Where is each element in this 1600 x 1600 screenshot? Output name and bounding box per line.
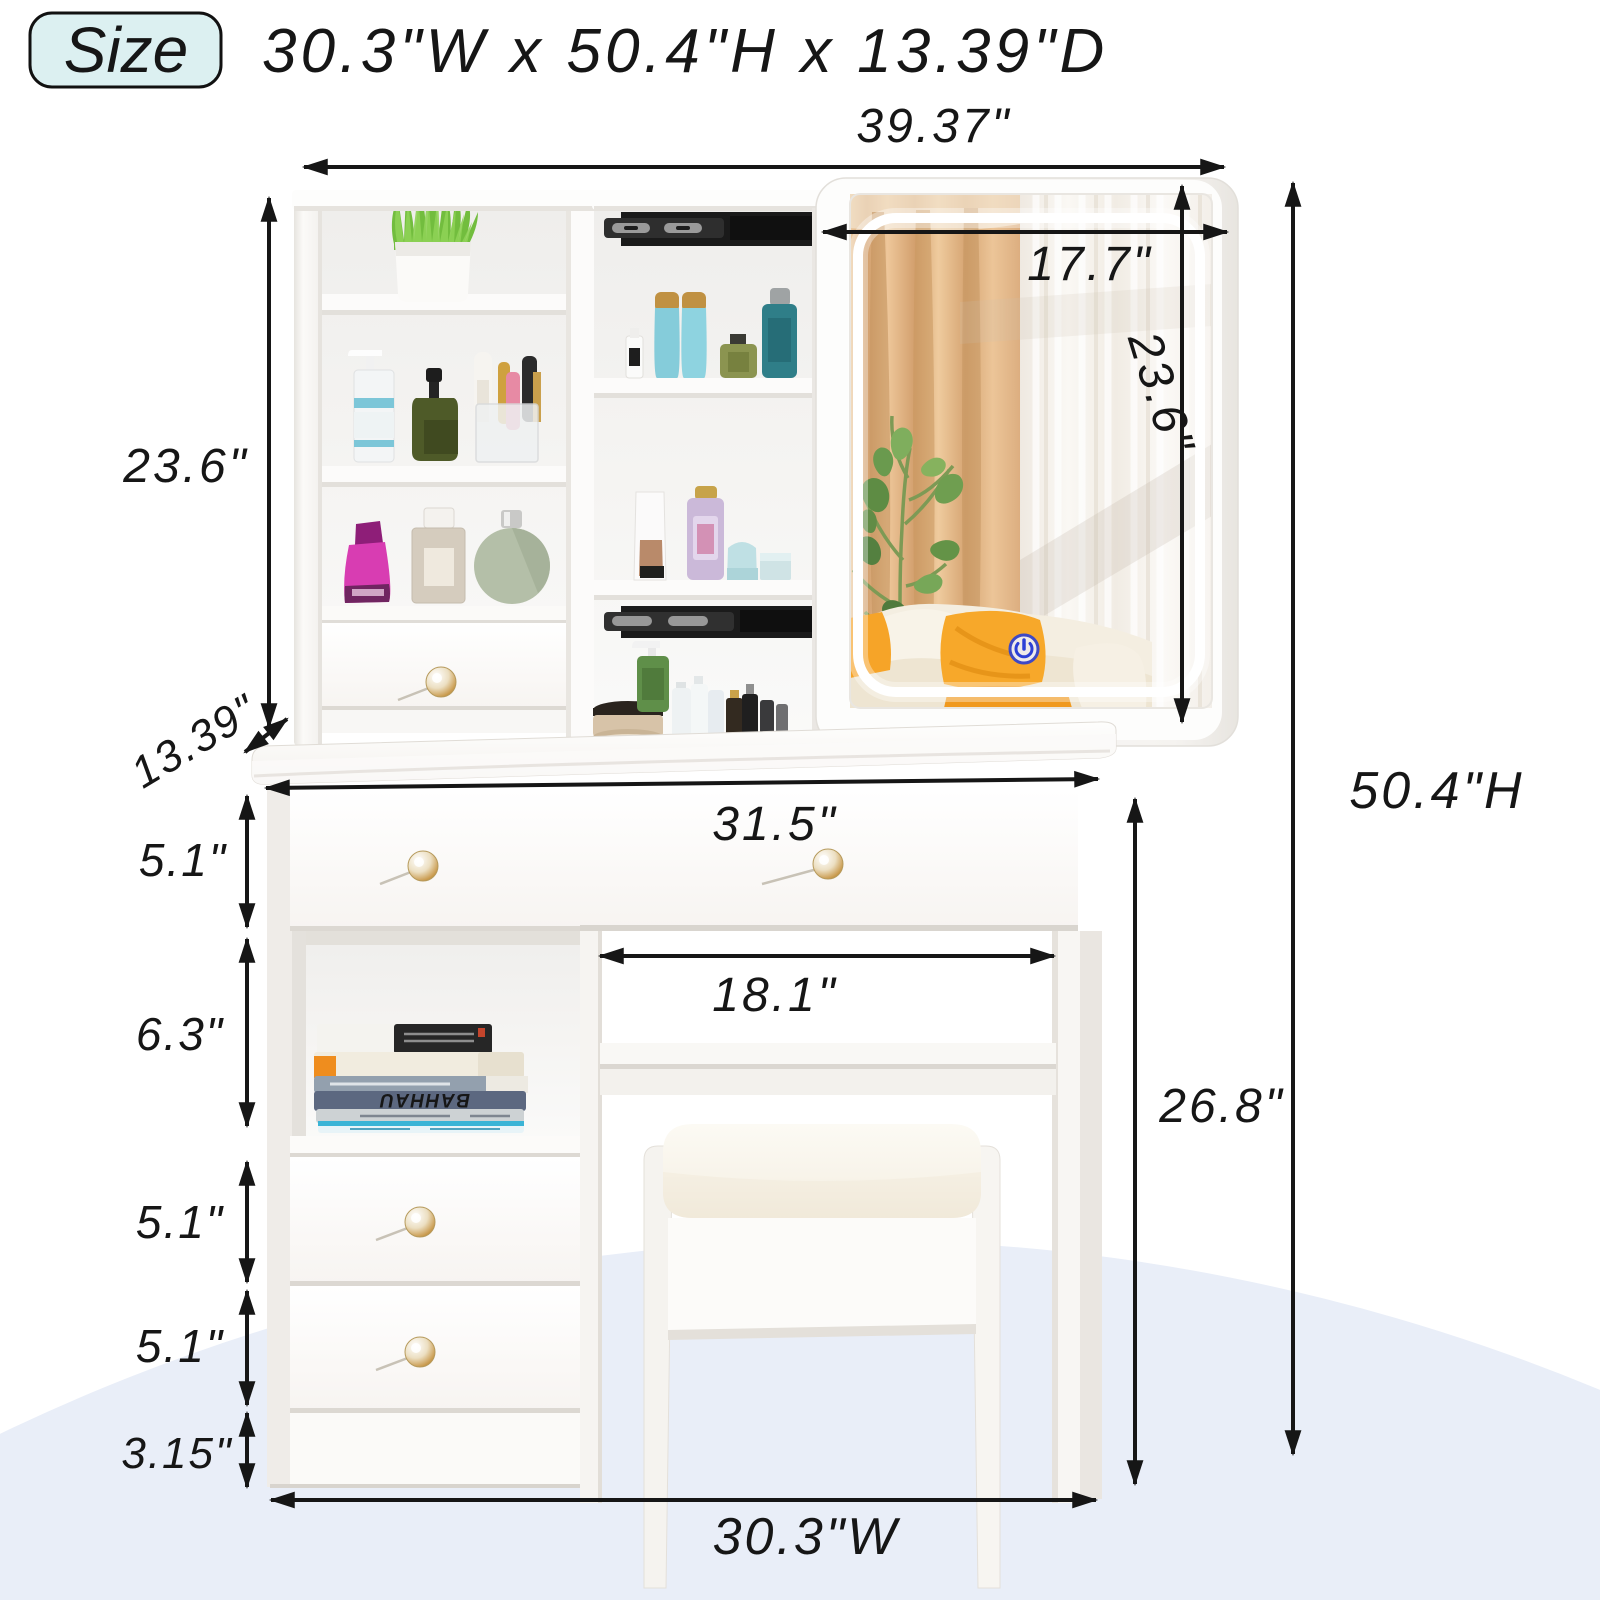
svg-text:6.3": 6.3" [136,1008,225,1060]
svg-text:31.5": 31.5" [712,798,837,851]
svg-text:30.3"W x 50.4"H x 13.39"D: 30.3"W x 50.4"H x 13.39"D [262,17,1109,86]
svg-text:50.4"H: 50.4"H [1349,762,1524,820]
svg-text:30.3"W: 30.3"W [713,1508,902,1566]
svg-text:39.37": 39.37" [856,100,1011,153]
svg-text:Size: Size [64,14,189,86]
svg-text:5.1": 5.1" [136,1196,225,1248]
svg-text:23.6": 23.6" [122,440,248,493]
svg-text:17.7": 17.7" [1027,238,1152,291]
svg-text:18.1": 18.1" [712,969,837,1022]
svg-text:26.8": 26.8" [1158,1080,1284,1133]
svg-text:BAHHAU: BAHHAU [379,1089,470,1110]
svg-text:5.1": 5.1" [139,834,228,886]
svg-text:5.1": 5.1" [136,1320,225,1372]
svg-text:3.15": 3.15" [121,1429,233,1478]
